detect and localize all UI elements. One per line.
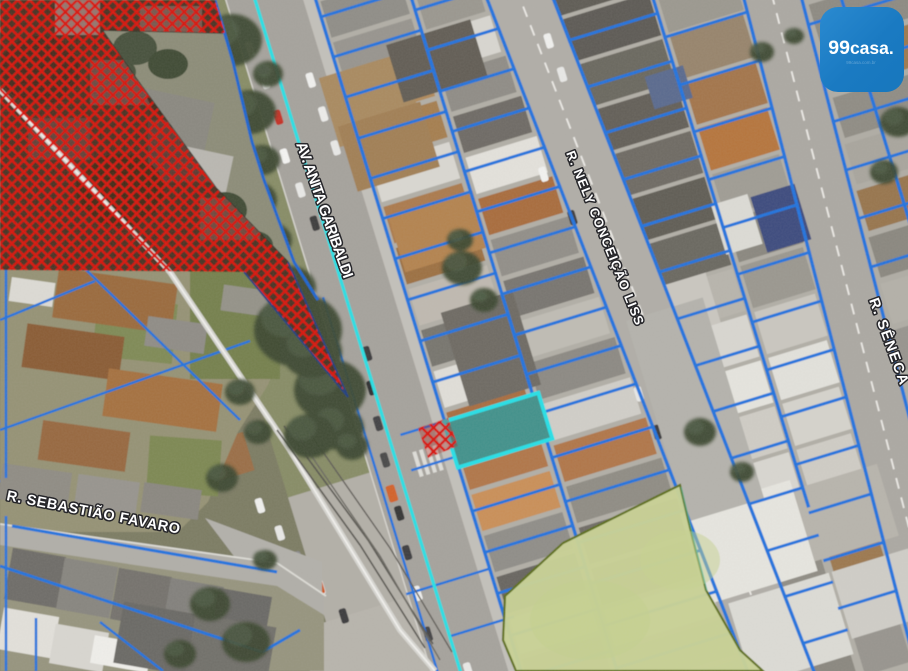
svg-text:99casa.: 99casa. (828, 37, 894, 59)
svg-text:99casa.com.br: 99casa.com.br (846, 60, 876, 65)
